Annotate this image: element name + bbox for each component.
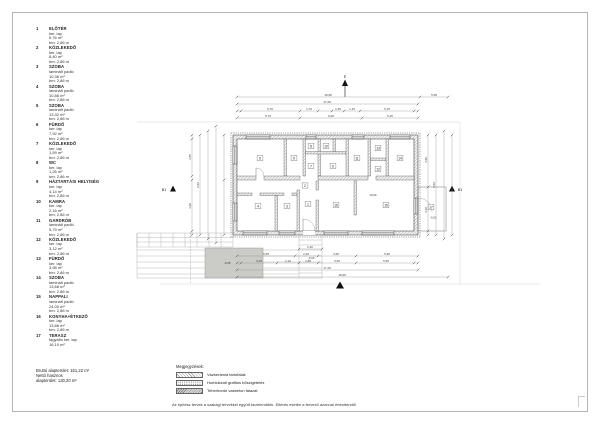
room-label-8: 8 (308, 143, 314, 148)
svg-text:1: 1 (307, 202, 309, 206)
svg-text:8: 8 (310, 144, 312, 148)
svg-text:7: 7 (310, 164, 312, 168)
room-label-1: 1 (305, 201, 311, 206)
svg-text:5,25: 5,25 (387, 114, 393, 118)
svg-text:17,28: 17,28 (323, 266, 331, 270)
svg-text:4,20: 4,20 (424, 207, 428, 213)
svg-text:15: 15 (384, 203, 388, 207)
svg-text:6: 6 (332, 164, 334, 168)
section-marker-right: B1 (449, 186, 462, 193)
room-label-3: 3 (284, 203, 290, 208)
svg-text:5,55: 5,55 (383, 259, 389, 263)
svg-text:16: 16 (334, 203, 338, 207)
room-label-13: 13 (375, 145, 381, 150)
svg-text:18,98: 18,98 (338, 273, 346, 277)
svg-text:10: 10 (324, 144, 328, 148)
svg-text:5,55: 5,55 (263, 252, 269, 256)
svg-text:12: 12 (376, 167, 380, 171)
svg-text:1,15: 1,15 (349, 107, 355, 111)
room-label-12: 12 (375, 166, 381, 171)
svg-text:5,90: 5,90 (384, 252, 390, 256)
svg-text:13: 13 (376, 146, 380, 150)
room-label-7: 7 (308, 163, 314, 168)
room-label-10: 10 (323, 143, 329, 148)
room-label-15: 15 (383, 202, 389, 207)
svg-text:9,56: 9,56 (432, 182, 436, 188)
exterior-walls (233, 135, 418, 235)
room-label-9: 9 (291, 155, 297, 160)
svg-text:5: 5 (259, 156, 261, 160)
svg-text:1,80: 1,80 (305, 259, 311, 263)
svg-text:5,58: 5,58 (431, 93, 437, 97)
svg-text:2,10: 2,10 (285, 259, 291, 263)
svg-text:1,35: 1,35 (335, 107, 341, 111)
svg-text:3,65: 3,65 (333, 252, 339, 256)
room-label-16: 16 (333, 202, 339, 207)
svg-text:6,00: 6,00 (328, 114, 334, 118)
svg-text:4,90: 4,90 (188, 203, 192, 209)
svg-text:2,20: 2,20 (303, 252, 309, 256)
terrace-level-marker: -0,02 (430, 216, 437, 220)
svg-text:É: É (344, 74, 347, 79)
svg-text:17: 17 (429, 205, 433, 209)
entrance-arrow (336, 282, 344, 289)
svg-text:3,55: 3,55 (188, 154, 192, 160)
room-label-17: 17 (428, 204, 434, 209)
left-dimension-chains: 3,55 4,90 9,56 (188, 125, 225, 245)
svg-text:18,98: 18,98 (324, 93, 332, 97)
svg-text:1,70: 1,70 (306, 107, 312, 111)
room-label-5: 5 (257, 155, 263, 160)
svg-text:3,60: 3,60 (334, 259, 340, 263)
windows (233, 135, 418, 235)
top-dimension-chains: 18,98 5,58 17,28 5,70 1,70 1,35 1,15 5,1… (236, 93, 450, 119)
svg-text:5,70: 5,70 (265, 114, 271, 118)
right-dimension-chains: 4,95 4,20 9,56 (424, 130, 453, 241)
room-label-6: 6 (330, 163, 336, 168)
svg-text:B1: B1 (458, 188, 462, 192)
svg-text:9: 9 (293, 156, 295, 160)
svg-text:17,28: 17,28 (323, 100, 331, 104)
svg-text:4,95: 4,95 (424, 157, 428, 163)
room-label-14: 14 (397, 155, 403, 160)
svg-text:4: 4 (257, 204, 259, 208)
floor-plan-svg: -0,05 -0,02 (0, 0, 600, 424)
svg-text:2: 2 (304, 184, 306, 188)
floor-level-marker: ±0,00 (370, 193, 377, 197)
svg-text:3: 3 (286, 204, 288, 208)
svg-text:14: 14 (398, 156, 402, 160)
north-arrow: É (342, 74, 348, 97)
pad-level-marker: -0,05 (224, 261, 231, 265)
svg-text:5,15: 5,15 (384, 107, 390, 111)
drawing-sheet: 1 ELŐTÉR ker. lap 5,76 m² bm: 2,86 m 2 K… (0, 0, 600, 424)
svg-text:11: 11 (355, 156, 359, 160)
svg-text:5,70: 5,70 (267, 107, 273, 111)
svg-text:B1: B1 (162, 188, 166, 192)
room-label-11: 11 (354, 155, 360, 160)
interior-walls (237, 139, 414, 231)
section-marker-left: B1 (162, 186, 176, 193)
svg-text:2,20: 2,20 (307, 245, 313, 249)
svg-text:3,45: 3,45 (256, 259, 262, 263)
room-label-2: 2 (302, 183, 308, 188)
svg-text:9,56: 9,56 (196, 182, 200, 188)
room-label-4: 4 (255, 203, 261, 208)
entry-walkway: -0,02 (299, 235, 322, 278)
